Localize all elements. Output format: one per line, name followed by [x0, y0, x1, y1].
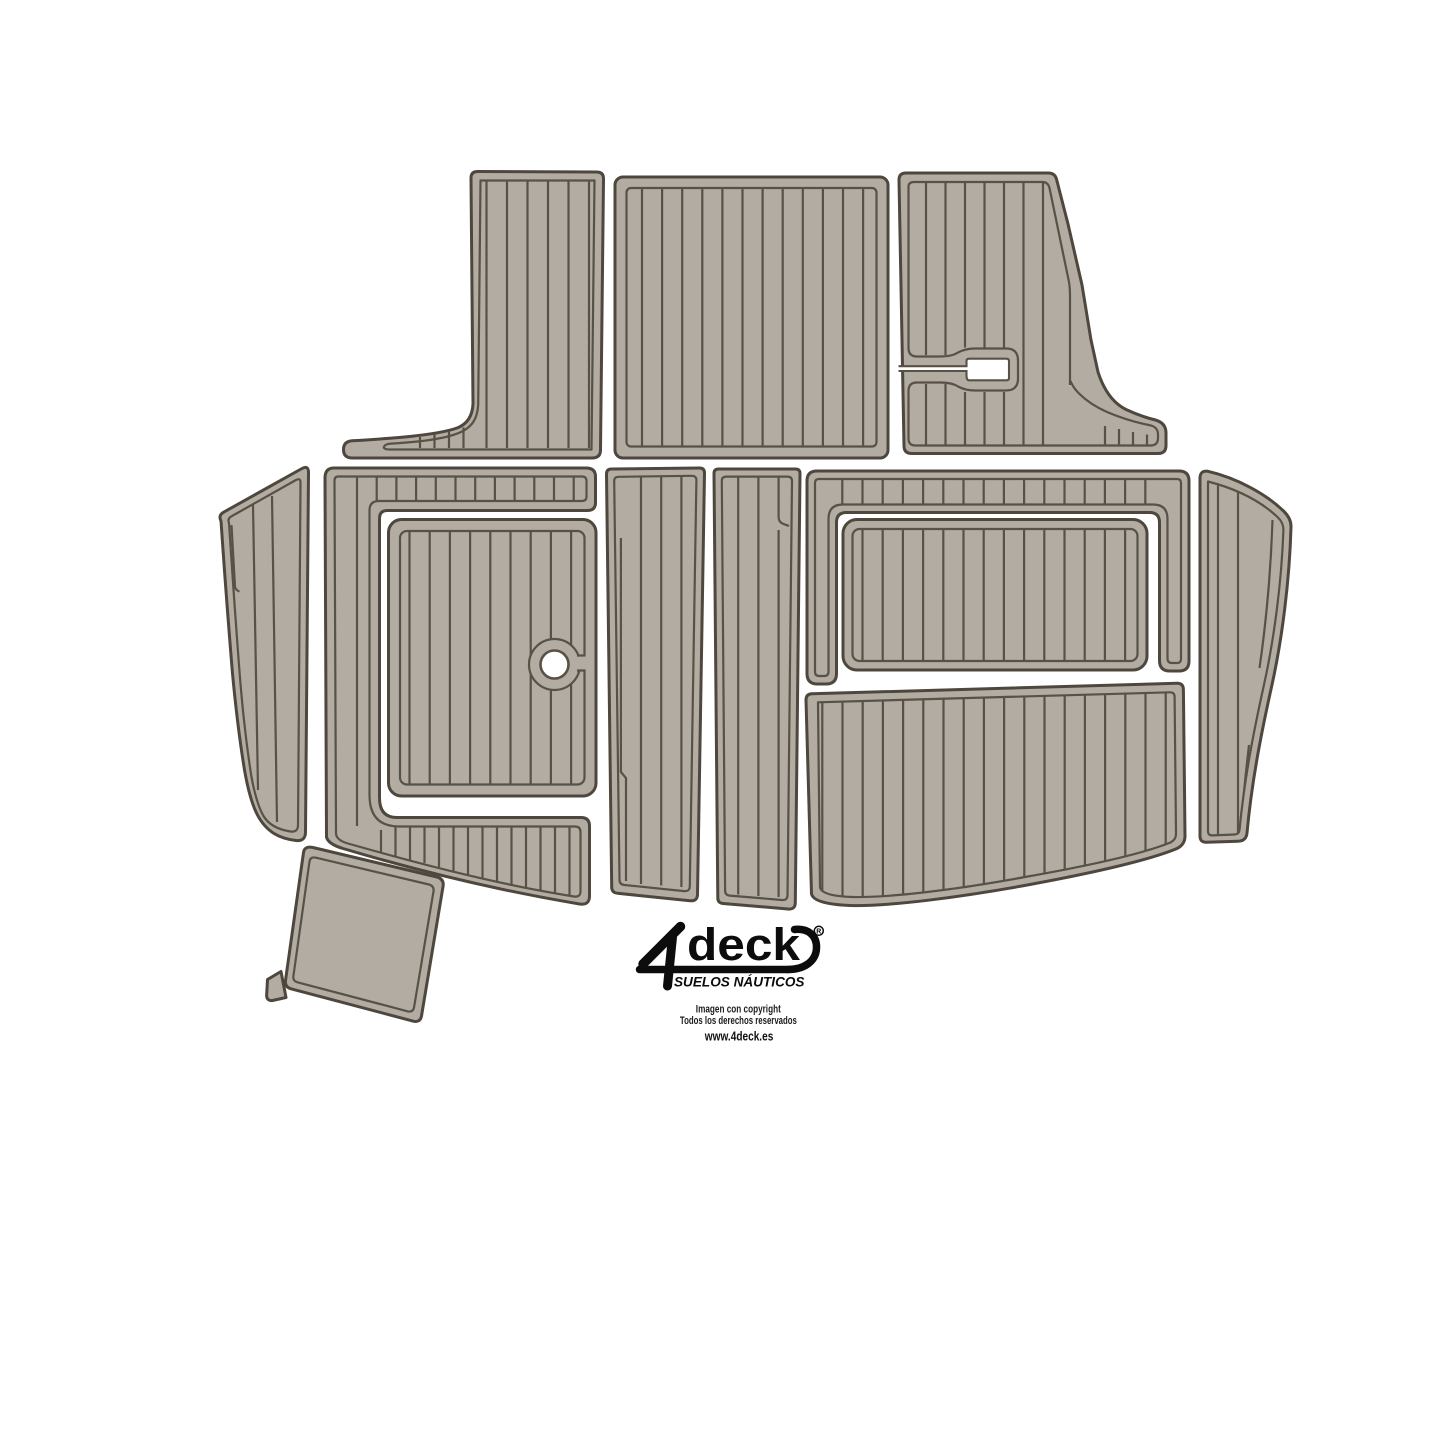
svg-text:www.4deck.es: www.4deck.es [704, 1029, 773, 1043]
svg-text:Todos los derechos reservados: Todos los derechos reservados [680, 1015, 797, 1027]
svg-text:Imagen con copyright: Imagen con copyright [696, 1003, 781, 1015]
svg-text:deck: deck [687, 919, 801, 970]
svg-text:R: R [816, 928, 821, 935]
svg-text:SUELOS NÁUTICOS: SUELOS NÁUTICOS [674, 974, 805, 990]
